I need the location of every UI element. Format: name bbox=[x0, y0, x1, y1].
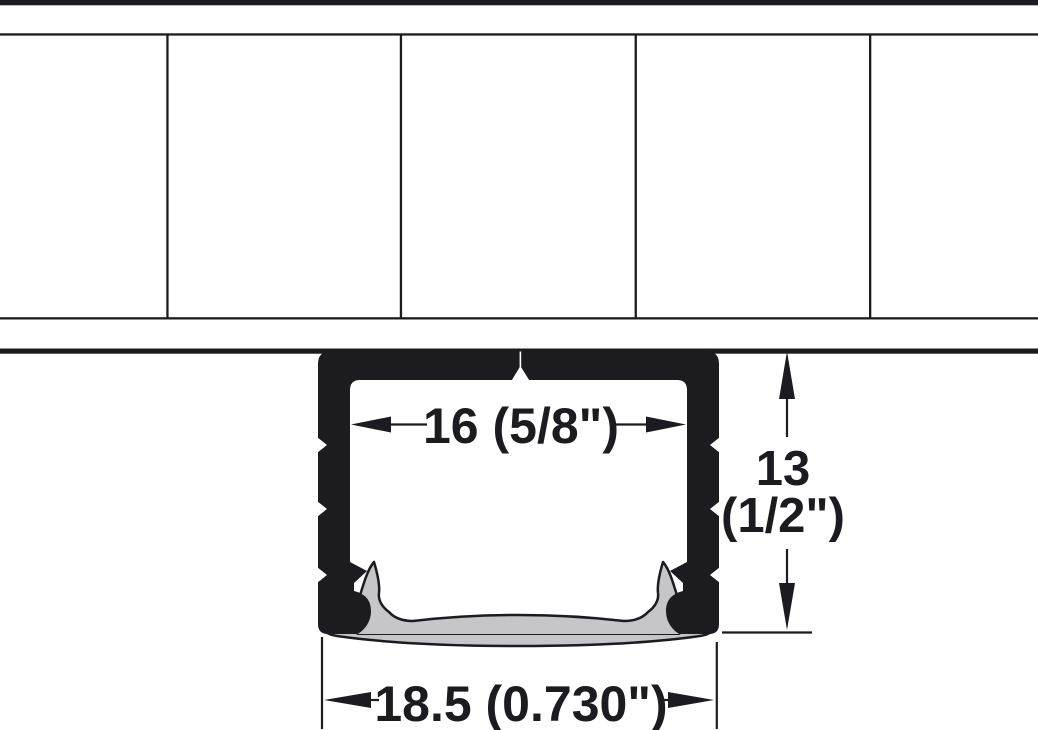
technical-drawing-canvas: 16 (5/8") 13 (1/2") 18.5 (0.730") bbox=[0, 0, 1038, 730]
dim-height-label-line2: (1/2") bbox=[721, 489, 845, 543]
panel-board-divider bbox=[635, 34, 637, 319]
knurl-notches bbox=[317, 437, 720, 583]
arrow-right-icon bbox=[668, 692, 714, 708]
arrow-left-icon bbox=[324, 692, 371, 708]
arrow-left-icon bbox=[351, 417, 391, 433]
dim-outer-width-label: 18.5 (0.730") bbox=[374, 676, 667, 730]
panel-board-divider bbox=[166, 34, 168, 319]
panel-top-edge-line bbox=[0, 0, 1038, 5]
dim-inner-width: 16 (5/8") bbox=[351, 398, 686, 454]
panel-upper-line bbox=[0, 33, 1038, 35]
panel-lower-line bbox=[0, 317, 1038, 319]
panel-section bbox=[0, 0, 1038, 354]
dim-inner-width-label: 16 (5/8") bbox=[423, 398, 619, 454]
dim-outer-width: 18.5 (0.730") bbox=[322, 637, 717, 730]
dim-height-label-line1: 13 bbox=[756, 442, 811, 496]
dim-height: 13 (1/2") bbox=[721, 352, 845, 633]
panel-board-divider bbox=[869, 34, 871, 319]
panel-board-divider bbox=[400, 34, 402, 319]
diffuser-lens bbox=[323, 562, 714, 646]
arrow-up-icon bbox=[779, 352, 795, 400]
arrow-down-icon bbox=[779, 583, 795, 630]
arrow-right-icon bbox=[646, 417, 686, 433]
